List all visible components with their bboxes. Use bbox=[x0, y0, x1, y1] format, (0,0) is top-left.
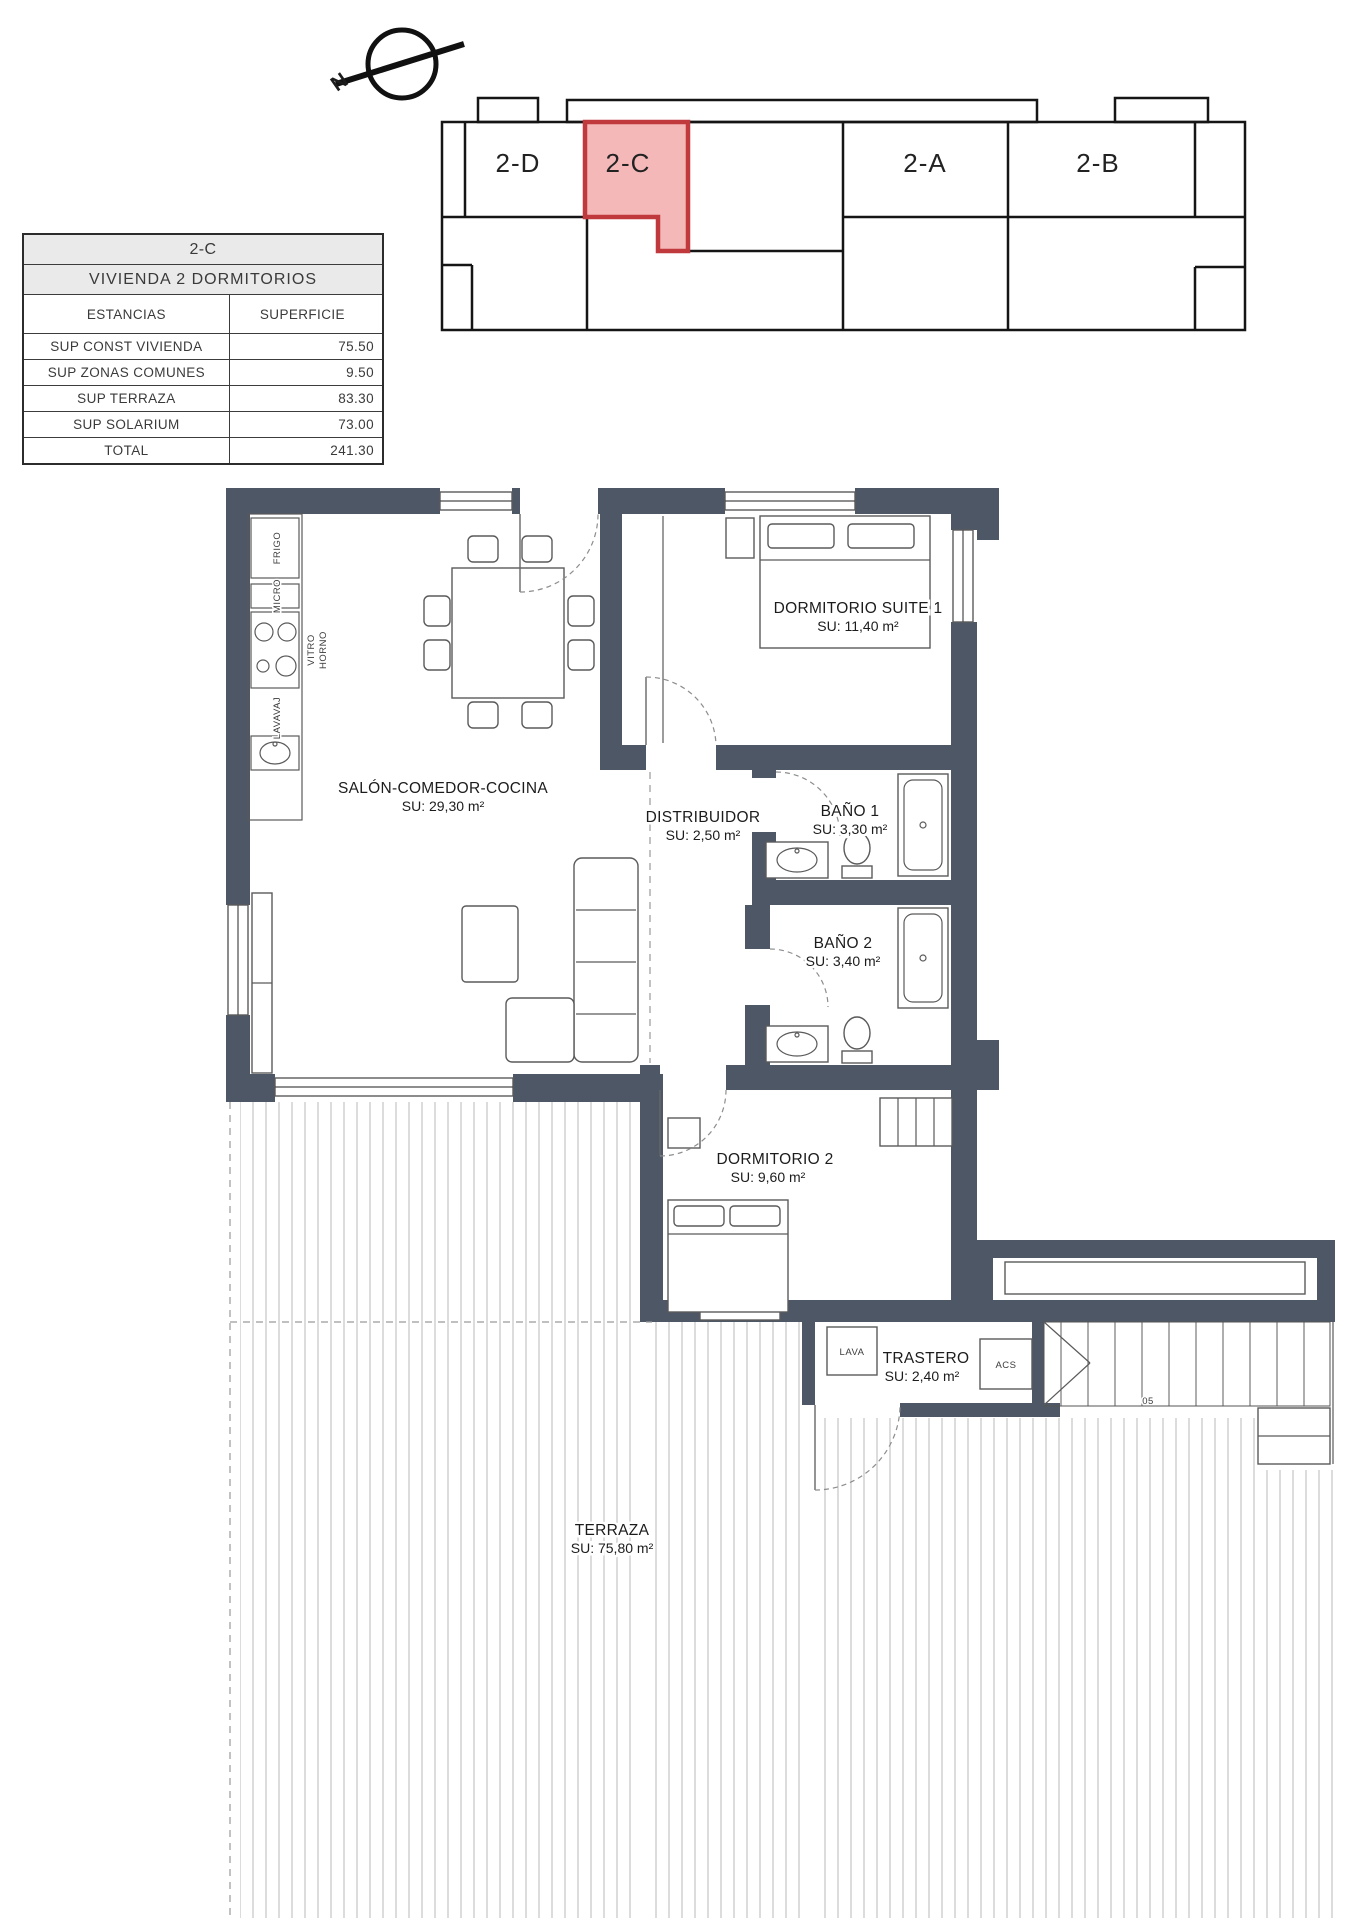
bano1-area: SU: 3,30 m² bbox=[813, 821, 888, 837]
dorm2-name: DORMITORIO 2 bbox=[717, 1151, 834, 1168]
acs-label: ACS bbox=[995, 1360, 1016, 1371]
salon-name: SALÓN-COMEDOR-COCINA bbox=[338, 780, 548, 797]
chaise bbox=[506, 998, 574, 1062]
pillow bbox=[848, 524, 914, 548]
bano2-name: BAÑO 2 bbox=[814, 935, 873, 952]
nightstand bbox=[726, 518, 754, 558]
shower bbox=[898, 908, 948, 1008]
coffee-table bbox=[462, 906, 518, 982]
plan-drawing: N 2-D 2-C 2-A 2-B bbox=[0, 0, 1356, 1920]
washer-label: LAVA bbox=[840, 1347, 865, 1358]
window bbox=[228, 905, 248, 1015]
toilet-tank bbox=[842, 866, 872, 878]
unit-label-2a: 2-A bbox=[903, 148, 946, 178]
highlighted-unit-2c bbox=[585, 122, 688, 251]
sofa bbox=[574, 858, 638, 1062]
trastero-name: TRASTERO bbox=[883, 1350, 970, 1367]
micro-label: MICRO bbox=[272, 579, 283, 613]
distribuidor-name: DISTRIBUIDOR bbox=[646, 809, 761, 826]
dishwasher-label: LAVAVAJ bbox=[272, 697, 283, 739]
floor-plan: FRIGO MICRO VITRO HORNO LAVAVAJ bbox=[226, 488, 1335, 1918]
toilet-tank bbox=[842, 1051, 872, 1063]
salon-area: SU: 29,30 m² bbox=[402, 798, 485, 814]
kitchen-sink bbox=[251, 736, 299, 770]
north-symbol: N bbox=[327, 30, 464, 98]
floorplan-sheet: 2-C VIVIENDA 2 DORMITORIOS ESTANCIAS SUP… bbox=[0, 0, 1356, 1920]
unit-label-2b: 2-B bbox=[1076, 148, 1119, 178]
suite-name: DORMITORIO SUITE 1 bbox=[774, 600, 943, 617]
stairs bbox=[1044, 1322, 1330, 1406]
vitro-label: VITRO bbox=[306, 634, 317, 666]
terraza-area: SU: 75,80 m² bbox=[571, 1540, 654, 1556]
bedroom2-furniture bbox=[668, 1098, 952, 1312]
nightstand bbox=[668, 1118, 700, 1148]
toilet bbox=[844, 1017, 870, 1049]
bano2-area: SU: 3,40 m² bbox=[806, 953, 881, 969]
shower bbox=[898, 774, 948, 876]
hob bbox=[251, 612, 299, 688]
distribuidor-area: SU: 2,50 m² bbox=[666, 827, 741, 843]
window bbox=[953, 530, 973, 622]
kitchen: FRIGO MICRO VITRO HORNO LAVAVAJ bbox=[248, 514, 329, 820]
north-label: N bbox=[327, 69, 353, 97]
horno-label: HORNO bbox=[318, 631, 329, 669]
pillow bbox=[674, 1206, 724, 1226]
window bbox=[275, 1078, 513, 1096]
key-plan: 2-D 2-C 2-A 2-B bbox=[442, 98, 1245, 330]
unit-label-2c: 2-C bbox=[606, 148, 651, 178]
pillow bbox=[730, 1206, 780, 1226]
window bbox=[440, 492, 512, 510]
stair-number: 05 bbox=[1142, 1396, 1154, 1407]
trastero-area: SU: 2,40 m² bbox=[885, 1368, 960, 1384]
pillow bbox=[768, 524, 834, 548]
terraza-name: TERRAZA bbox=[575, 1522, 650, 1539]
dorm2-area: SU: 9,60 m² bbox=[731, 1169, 806, 1185]
suite-area: SU: 11,40 m² bbox=[817, 618, 899, 634]
bano1-name: BAÑO 1 bbox=[821, 803, 880, 820]
window bbox=[725, 492, 855, 510]
unit-label-2d: 2-D bbox=[496, 148, 541, 178]
fridge-label: FRIGO bbox=[272, 532, 283, 565]
